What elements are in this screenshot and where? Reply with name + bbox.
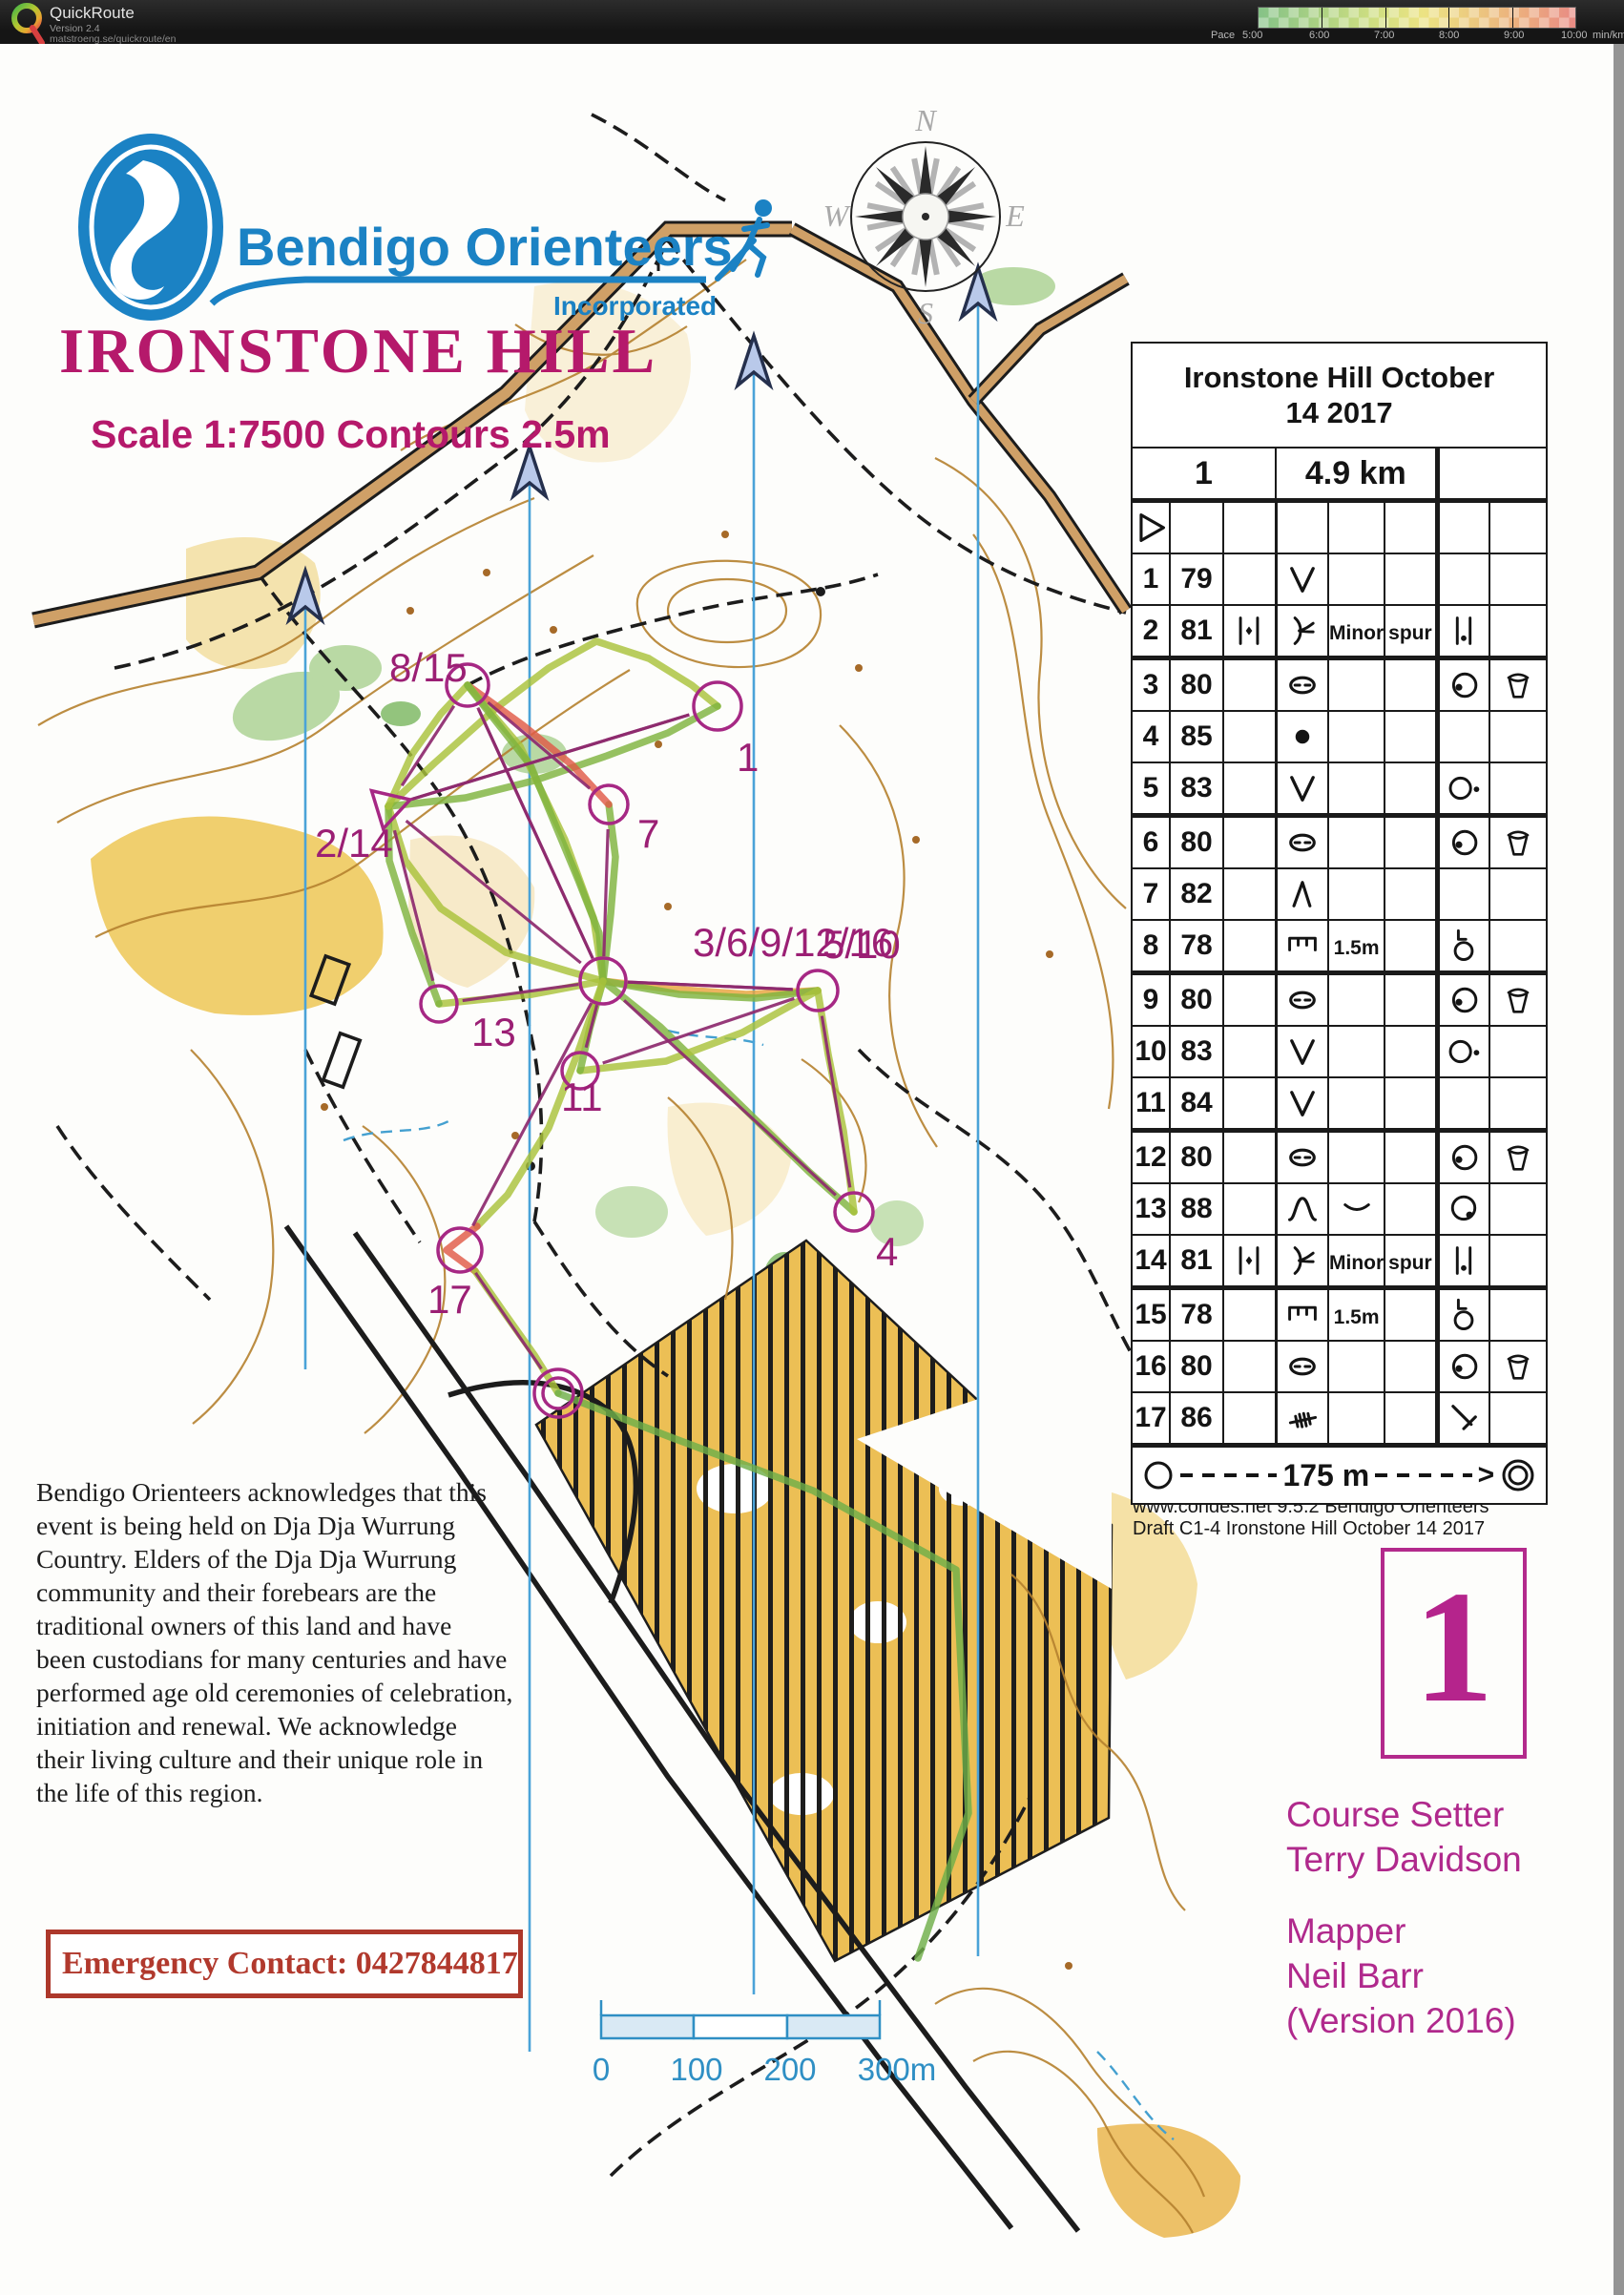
- cd-symbol-cell: [1328, 711, 1385, 762]
- cd-control-no: 5: [1132, 762, 1170, 816]
- cd-text: Minor: [1329, 622, 1384, 644]
- cd-control-no: 12: [1132, 1131, 1170, 1184]
- cd-control-no: 8: [1132, 920, 1170, 973]
- cd-symbol-cell: [1489, 1392, 1547, 1446]
- cd-text: 1.5m: [1334, 1306, 1380, 1328]
- compass-e: E: [1005, 198, 1025, 233]
- cd-control-row: [1132, 501, 1547, 554]
- scalebar-0: 0: [593, 2052, 610, 2087]
- cd-symbol-cell: [1437, 1235, 1489, 1288]
- app-name: QuickRoute: [50, 4, 135, 23]
- cd-symbol-cell: [1437, 1131, 1489, 1184]
- cd-symbol-cell: [1328, 501, 1385, 554]
- condes-line2: Draft C1-4 Ironstone Hill October 14 201…: [1133, 1518, 1489, 1540]
- finish-double-circle-icon: [1500, 1457, 1536, 1493]
- cd-symbol-cell: [1276, 553, 1328, 605]
- cd-symbol-cell: [1489, 1341, 1547, 1392]
- cd-control-no: 3: [1132, 658, 1170, 712]
- cd-symbol-cell: [1328, 762, 1385, 816]
- cd-symbol-cell: [1276, 1026, 1328, 1077]
- cd-control-no: 10: [1132, 1026, 1170, 1077]
- cd-title-row: Ironstone Hill October14 2017: [1132, 343, 1547, 448]
- cd-symbol-cell: [1489, 762, 1547, 816]
- cd-symbol-cell: [1489, 868, 1547, 920]
- cd-control-no: 13: [1132, 1183, 1170, 1235]
- cd-symbol-cell: [1385, 1288, 1437, 1342]
- cd-symbol-cell: [1489, 711, 1547, 762]
- cd-symbol-cell: [1385, 553, 1437, 605]
- cd-symbol-cell: [1385, 711, 1437, 762]
- page-edge-shadow: [1614, 44, 1624, 2295]
- cd-control-code: 80: [1170, 658, 1223, 712]
- cd-symbol-cell: [1437, 1341, 1489, 1392]
- cd-text: Minor: [1329, 1252, 1384, 1274]
- cd-symbol-cell: [1328, 1026, 1385, 1077]
- cd-symbol-cell: [1437, 1392, 1489, 1446]
- control-number-label: 13: [471, 1010, 516, 1054]
- cd-symbol-cell: [1437, 501, 1489, 554]
- cd-symbol-cell: [1437, 605, 1489, 658]
- cd-symbol-cell: [1489, 605, 1547, 658]
- control-number-label: 7: [637, 811, 659, 856]
- cd-control-code: 78: [1170, 1288, 1223, 1342]
- cd-symbol-cell: 1.5m: [1328, 1288, 1385, 1342]
- cd-control-code: 80: [1170, 816, 1223, 869]
- course-setter-block: Course Setter Terry Davidson: [1286, 1792, 1522, 1882]
- pace-tick-label: 6:00: [1309, 30, 1329, 41]
- cd-course-row: 14.9 km: [1132, 448, 1547, 501]
- cd-control-no: 14: [1132, 1235, 1170, 1288]
- cd-symbol-cell: Minor: [1328, 605, 1385, 658]
- cd-control-row: 1184: [1132, 1077, 1547, 1131]
- cd-symbol-cell: [1385, 816, 1437, 869]
- cd-symbol-cell: [1223, 605, 1276, 658]
- cd-control-row: 281Minorspur: [1132, 605, 1547, 658]
- cd-control-no: 1: [1132, 553, 1170, 605]
- cd-symbol-cell: [1437, 1077, 1489, 1131]
- control-number-label: 11: [561, 1074, 603, 1119]
- cd-control-code: 78: [1170, 920, 1223, 973]
- cd-control-code: 83: [1170, 1026, 1223, 1077]
- pace-unit-label: min/km: [1593, 30, 1624, 41]
- cd-control-code: 86: [1170, 1392, 1223, 1446]
- control-number-label: 17: [427, 1277, 472, 1322]
- compass-s: S: [918, 296, 933, 330]
- control-number-label: 4: [876, 1229, 898, 1274]
- control-number-label: 5/10: [822, 922, 901, 967]
- cd-control-no: 4: [1132, 711, 1170, 762]
- cd-symbol-cell: [1437, 868, 1489, 920]
- cd-control-no: 17: [1132, 1392, 1170, 1446]
- cd-symbol-cell: [1489, 501, 1547, 554]
- cd-control-row: 1786: [1132, 1392, 1547, 1446]
- cd-symbol-cell: [1437, 1183, 1489, 1235]
- cd-symbol-cell: [1276, 1288, 1328, 1342]
- cd-control-code: 85: [1170, 711, 1223, 762]
- cd-control-code: 83: [1170, 762, 1223, 816]
- cd-symbol-cell: [1328, 1077, 1385, 1131]
- cd-symbol-cell: [1223, 973, 1276, 1027]
- cd-symbol-cell: [1276, 658, 1328, 712]
- cd-symbol-cell: [1223, 920, 1276, 973]
- app-url[interactable]: matstroeng.se/quickroute/en: [50, 33, 177, 45]
- cd-symbol-cell: [1276, 1235, 1328, 1288]
- cd-control-code: 80: [1170, 1131, 1223, 1184]
- acknowledgement-text: Bendigo Orienteers acknowledges that thi…: [36, 1475, 540, 1809]
- title-bar: QuickRoute Version 2.4 matstroeng.se/qui…: [0, 0, 1624, 44]
- cd-symbol-cell: [1385, 501, 1437, 554]
- cd-symbol-cell: [1385, 1341, 1437, 1392]
- cd-symbol-cell: [1276, 762, 1328, 816]
- cd-symbol-cell: [1223, 762, 1276, 816]
- cd-symbol-cell: [1385, 868, 1437, 920]
- cd-symbol-cell: [1489, 1183, 1547, 1235]
- cd-symbol-cell: [1276, 973, 1328, 1027]
- cd-symbol-cell: [1385, 920, 1437, 973]
- cd-symbol-cell: [1223, 711, 1276, 762]
- cd-control-row: 15781.5m: [1132, 1288, 1547, 1342]
- cd-control-row: 1481Minorspur: [1132, 1235, 1547, 1288]
- compass-n: N: [914, 103, 937, 137]
- cd-control-code: 88: [1170, 1183, 1223, 1235]
- control-description-sheet: Ironstone Hill October14 201714.9 km1792…: [1131, 342, 1548, 1505]
- cd-symbol-cell: [1489, 816, 1547, 869]
- cd-control-code: 81: [1170, 1235, 1223, 1288]
- cd-symbol-cell: [1489, 1288, 1547, 1342]
- course-number-box: 1: [1381, 1548, 1527, 1759]
- cd-symbol-cell: [1328, 1131, 1385, 1184]
- cd-symbol-cell: [1223, 816, 1276, 869]
- cd-control-no: 2: [1132, 605, 1170, 658]
- cd-control-row: 680: [1132, 816, 1547, 869]
- cd-symbol-cell: [1489, 658, 1547, 712]
- cd-symbol-cell: [1385, 973, 1437, 1027]
- cd-symbol-cell: Minor: [1328, 1235, 1385, 1288]
- cd-symbol-cell: [1276, 1392, 1328, 1446]
- cd-symbol-cell: [1385, 1077, 1437, 1131]
- cd-control-row: 179: [1132, 553, 1547, 605]
- cd-symbol-cell: [1276, 1077, 1328, 1131]
- cd-symbol-cell: [1223, 1392, 1276, 1446]
- cd-control-row: 1280: [1132, 1131, 1547, 1184]
- pace-tick-label: 8:00: [1439, 30, 1459, 41]
- scalebar-300: 300m: [858, 2052, 937, 2087]
- map-title: IRONSTONE HILL: [59, 315, 657, 388]
- cd-symbol-cell: [1437, 816, 1489, 869]
- cd-text: spur: [1388, 1252, 1432, 1274]
- cd-control-row: 583: [1132, 762, 1547, 816]
- cd-symbol-cell: [1437, 973, 1489, 1027]
- cd-symbol-cell: [1328, 553, 1385, 605]
- cd-symbol-cell: [1328, 973, 1385, 1027]
- cd-control-no: 16: [1132, 1341, 1170, 1392]
- cd-symbol-cell: [1385, 1392, 1437, 1446]
- cd-control-code: [1170, 501, 1223, 554]
- cd-symbol-cell: [1437, 711, 1489, 762]
- cd-finish-distance: 175 m: [1282, 1458, 1369, 1493]
- cd-symbol-cell: [1223, 868, 1276, 920]
- cd-control-no: 6: [1132, 816, 1170, 869]
- cd-control-no: 11: [1132, 1077, 1170, 1131]
- pace-tick-label: 9:00: [1504, 30, 1524, 41]
- cd-symbol-cell: [1328, 1183, 1385, 1235]
- cd-symbol-cell: [1223, 1026, 1276, 1077]
- cd-symbol-cell: [1276, 1183, 1328, 1235]
- cd-control-row: 782: [1132, 868, 1547, 920]
- course-leg-line: [410, 715, 689, 800]
- cd-symbol-cell: [1223, 1235, 1276, 1288]
- mapper-block: Mapper Neil Barr (Version 2016): [1286, 1909, 1516, 2043]
- cd-symbol-cell: [1437, 658, 1489, 712]
- cd-control-code: 81: [1170, 605, 1223, 658]
- quickroute-logo-icon: [6, 0, 50, 44]
- cd-symbol-cell: [1385, 1131, 1437, 1184]
- pace-label: Pace: [1211, 30, 1235, 41]
- cd-symbol-cell: [1276, 816, 1328, 869]
- cd-control-code: 82: [1170, 868, 1223, 920]
- cd-symbol-cell: [1223, 1077, 1276, 1131]
- cd-symbol-cell: [1385, 658, 1437, 712]
- cd-control-row: 380: [1132, 658, 1547, 712]
- control-number-label: 1: [737, 735, 759, 780]
- pace-tick-label: 5:00: [1242, 30, 1262, 41]
- cd-control-code: 84: [1170, 1077, 1223, 1131]
- cd-symbol-cell: [1489, 553, 1547, 605]
- map-scale-note: Scale 1:7500 Contours 2.5m: [91, 412, 611, 457]
- cd-control-no: 9: [1132, 973, 1170, 1027]
- cd-symbol-cell: [1385, 1183, 1437, 1235]
- cd-control-code: 79: [1170, 553, 1223, 605]
- cd-symbol-cell: [1276, 920, 1328, 973]
- cd-control-no: [1132, 501, 1170, 554]
- cd-symbol-cell: [1328, 1341, 1385, 1392]
- pace-tick-label: 10:00: [1561, 30, 1588, 41]
- out-of-bounds-area: [536, 1241, 1112, 1961]
- cd-symbol-cell: [1489, 1235, 1547, 1288]
- cd-symbol-cell: [1276, 868, 1328, 920]
- cd-control-row: 1083: [1132, 1026, 1547, 1077]
- cd-symbol-cell: [1223, 501, 1276, 554]
- cd-symbol-cell: [1489, 1077, 1547, 1131]
- cd-symbol-cell: [1437, 1026, 1489, 1077]
- cd-symbol-cell: [1328, 816, 1385, 869]
- cd-text: spur: [1388, 622, 1432, 644]
- cd-symbol-cell: [1489, 1131, 1547, 1184]
- scalebar-200: 200: [763, 2052, 816, 2087]
- cd-symbol-cell: [1437, 762, 1489, 816]
- cd-symbol-cell: [1223, 553, 1276, 605]
- cd-symbol-cell: [1489, 1026, 1547, 1077]
- cd-symbol-cell: [1385, 1026, 1437, 1077]
- cd-symbol-cell: [1328, 1392, 1385, 1446]
- cd-control-row: 485: [1132, 711, 1547, 762]
- emergency-contact: Emergency Contact: 0427844817: [46, 1930, 523, 1998]
- cd-symbol-cell: spur: [1385, 1235, 1437, 1288]
- cd-symbol-cell: [1223, 1341, 1276, 1392]
- scale-bar: 0 100 200 300m: [593, 2000, 936, 2087]
- cd-control-row: 1388: [1132, 1183, 1547, 1235]
- cd-symbol-cell: [1437, 1288, 1489, 1342]
- cd-control-no: 7: [1132, 868, 1170, 920]
- cd-symbol-cell: [1276, 605, 1328, 658]
- cd-symbol-cell: [1223, 1183, 1276, 1235]
- cd-symbol-cell: [1223, 658, 1276, 712]
- cd-text: 1.5m: [1334, 937, 1380, 959]
- club-name: Bendigo Orienteers: [237, 217, 733, 277]
- course-leg-line: [475, 1273, 541, 1369]
- cd-symbol-cell: [1489, 973, 1547, 1027]
- cd-symbol-cell: [1276, 1341, 1328, 1392]
- cd-control-no: 15: [1132, 1288, 1170, 1342]
- cd-control-row: 980: [1132, 973, 1547, 1027]
- cd-finish-row: 175 m>: [1132, 1446, 1547, 1505]
- cd-symbol-cell: [1328, 868, 1385, 920]
- finish-circle-icon: [1142, 1459, 1175, 1492]
- cd-symbol-cell: [1489, 920, 1547, 973]
- cd-symbol-cell: [1437, 553, 1489, 605]
- cd-symbol-cell: [1328, 658, 1385, 712]
- pace-gradient-bar[interactable]: [1258, 7, 1576, 29]
- cd-symbol-cell: [1223, 1131, 1276, 1184]
- cd-symbol-cell: [1385, 762, 1437, 816]
- quickroute-window: { "window": { "app_name": "QuickRoute", …: [0, 0, 1624, 2295]
- cd-course-number: 1: [1132, 448, 1276, 501]
- cd-symbol-cell: spur: [1385, 605, 1437, 658]
- control-number-label: 8/15: [389, 645, 468, 690]
- compass-w: W: [823, 198, 852, 233]
- cd-control-row: 8781.5m: [1132, 920, 1547, 973]
- scalebar-100: 100: [670, 2052, 722, 2087]
- cd-symbol-cell: 1.5m: [1328, 920, 1385, 973]
- control-number-label: 2/14: [315, 821, 393, 866]
- cd-symbol-cell: [1276, 1131, 1328, 1184]
- cd-control-code: 80: [1170, 1341, 1223, 1392]
- cd-symbol-cell: [1276, 711, 1328, 762]
- pace-tick-label: 7:00: [1374, 30, 1394, 41]
- cd-symbol-cell: [1223, 1288, 1276, 1342]
- cd-control-row: 1680: [1132, 1341, 1547, 1392]
- cd-control-code: 80: [1170, 973, 1223, 1027]
- cd-symbol-cell: [1276, 501, 1328, 554]
- cd-course-length: 4.9 km: [1276, 448, 1437, 501]
- cd-symbol-cell: [1437, 920, 1489, 973]
